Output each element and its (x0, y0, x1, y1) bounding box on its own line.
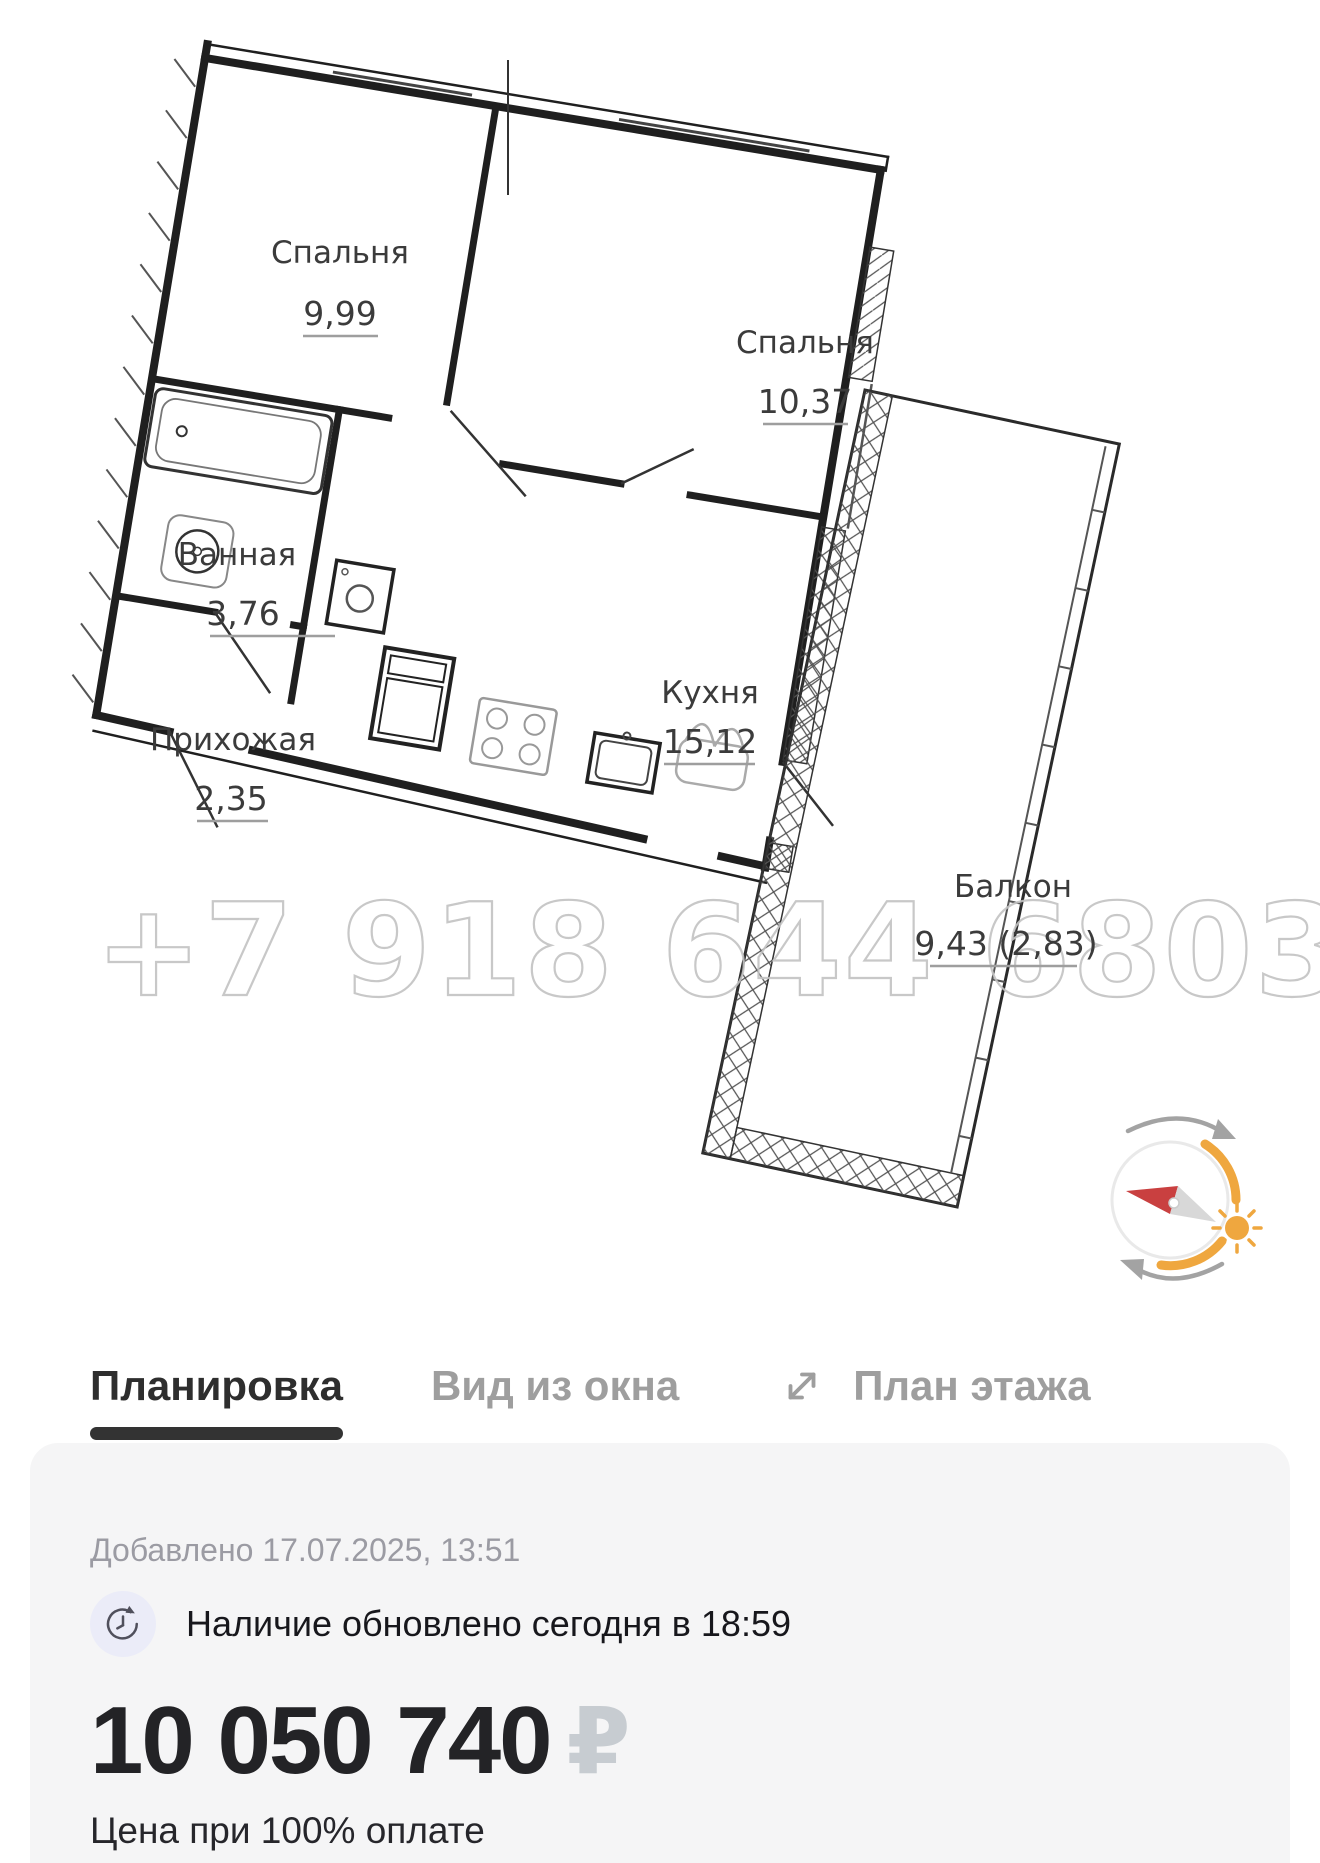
svg-text:Ванная: Ванная (178, 537, 296, 573)
svg-text:Спальня: Спальня (736, 325, 874, 361)
listing-info-card: Добавлено 17.07.2025, 13:51 Наличие обно… (30, 1443, 1290, 1863)
sun-icon (1213, 1204, 1261, 1252)
floorplan-image[interactable]: +7 918 644 6803 Спальня 9,99 Спальня 10,… (0, 0, 1320, 1350)
room-label-bedroom-1: Спальня 9,99 (271, 235, 409, 336)
expand-icon[interactable] (779, 1362, 825, 1410)
svg-text:Прихожая: Прихожая (150, 722, 316, 758)
svg-text:9,43 (2,83): 9,43 (2,83) (914, 924, 1097, 963)
compass-icon[interactable] (1112, 1118, 1261, 1280)
currency-ruble: ₽ (566, 1694, 630, 1791)
availability-row: Наличие обновлено сегодня в 18:59 (90, 1591, 1230, 1657)
svg-text:Спальня: Спальня (271, 235, 409, 271)
room-label-hallway: Прихожая 2,35 (150, 722, 316, 821)
svg-text:9,99: 9,99 (303, 294, 376, 333)
added-date: Добавлено 17.07.2025, 13:51 (90, 1531, 1230, 1569)
svg-text:Кухня: Кухня (661, 675, 759, 711)
room-label-kitchen: Кухня 15,12 (661, 675, 759, 764)
listing-screen: +7 918 644 6803 Спальня 9,99 Спальня 10,… (0, 0, 1320, 1863)
price-value: 10 050 740 (90, 1691, 550, 1792)
balcony-structure (703, 390, 1119, 1207)
tab-floor-plan[interactable]: План этажа (853, 1362, 1090, 1410)
price-row: 10 050 740 ₽ (90, 1691, 1230, 1792)
tab-layout[interactable]: Планировка (90, 1362, 343, 1410)
svg-text:Балкон: Балкон (954, 869, 1072, 905)
clock-icon (90, 1591, 156, 1657)
tab-window-view[interactable]: Вид из окна (431, 1362, 679, 1410)
svg-text:10,37: 10,37 (758, 382, 852, 421)
svg-text:3,76: 3,76 (206, 594, 279, 633)
availability-text: Наличие обновлено сегодня в 18:59 (186, 1603, 791, 1645)
phone-watermark: +7 918 644 6803 (95, 877, 1320, 1026)
svg-text:15,12: 15,12 (663, 722, 757, 761)
price-note: Цена при 100% оплате (90, 1810, 1230, 1852)
media-tabs: Планировка Вид из окна План этажа (0, 1362, 1320, 1442)
svg-text:2,35: 2,35 (194, 779, 267, 818)
